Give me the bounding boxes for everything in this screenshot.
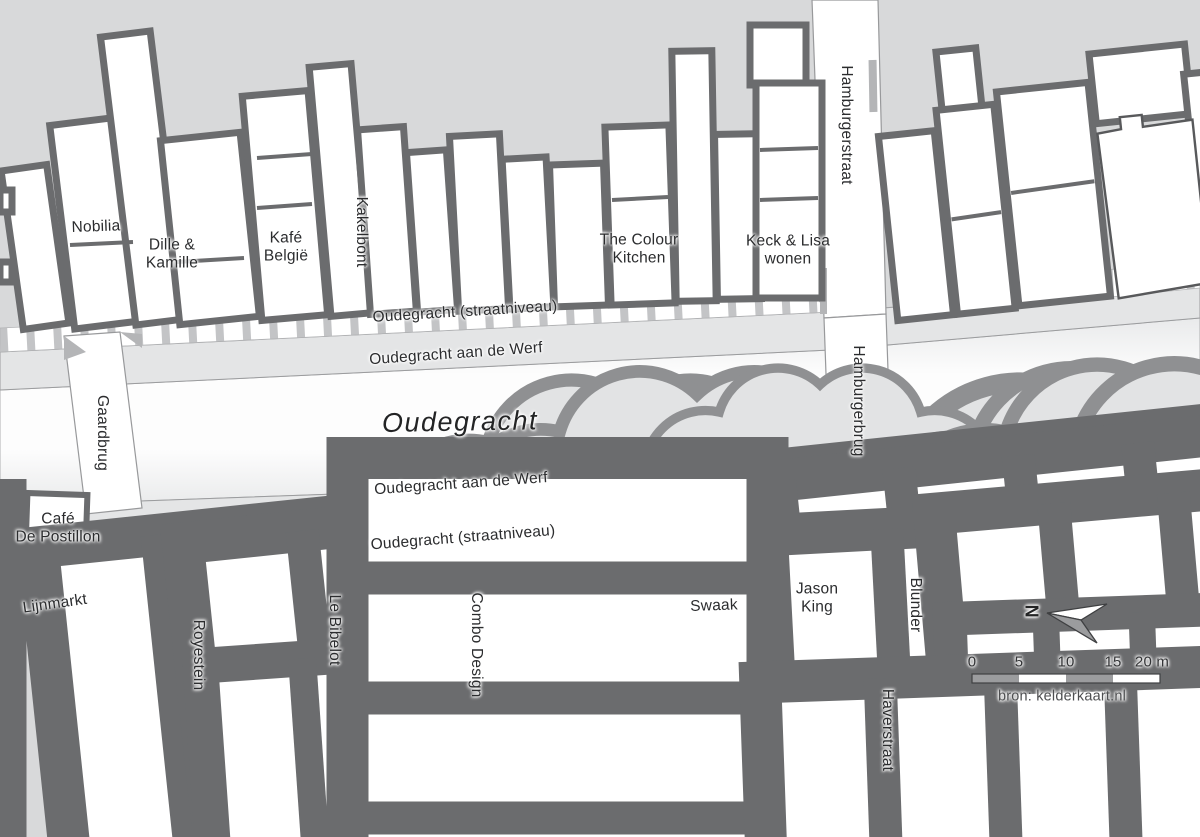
map-svg [0, 0, 1200, 837]
scale-bar [972, 674, 1160, 683]
kelderkaart-map: Nobilia Dille & Kamille Kafé België Kake… [0, 0, 1200, 837]
